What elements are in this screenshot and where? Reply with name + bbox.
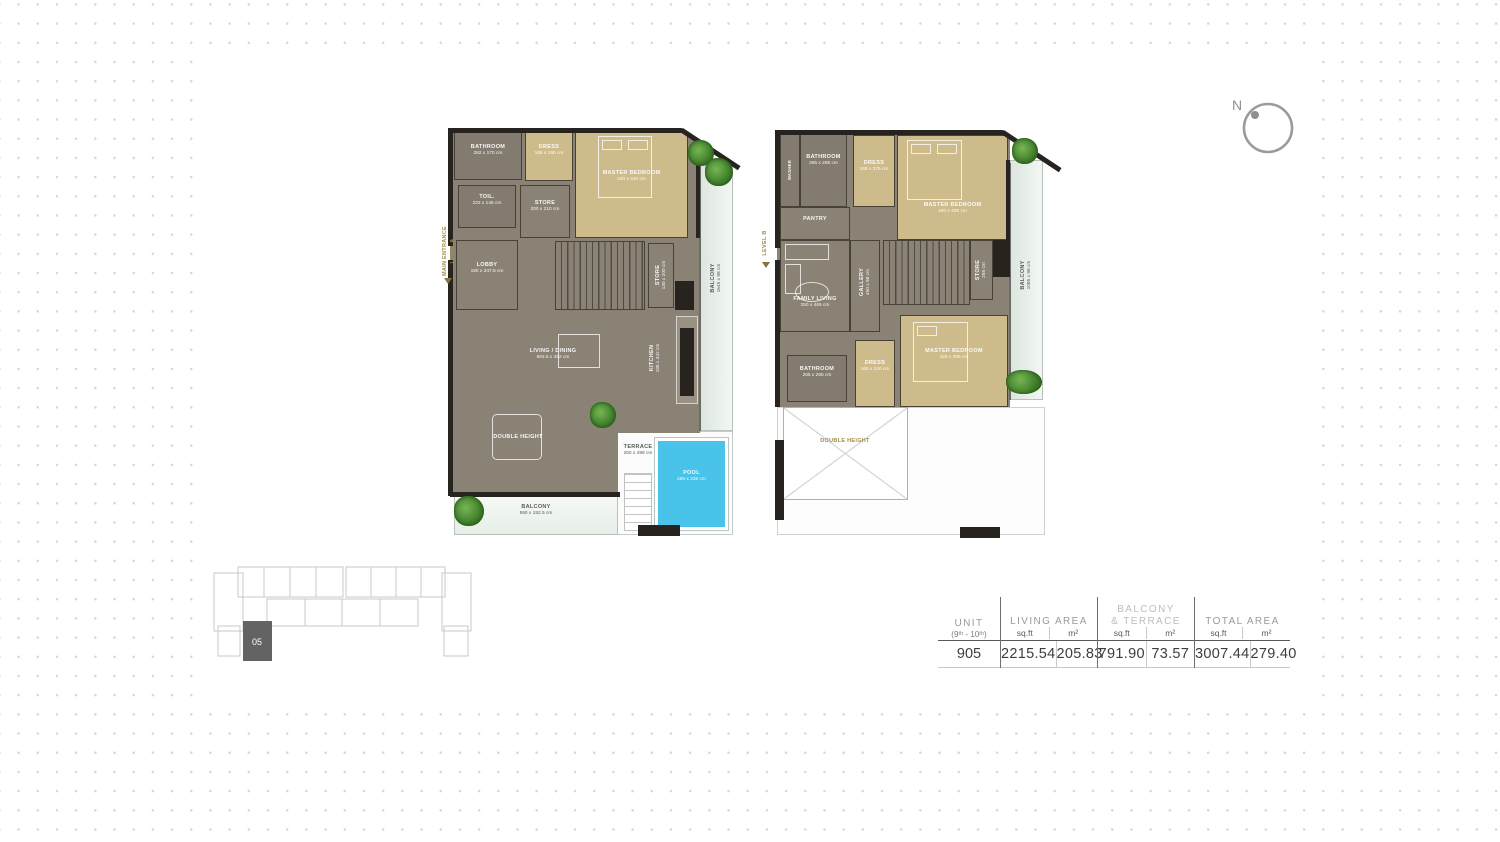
- pillow-outline: [602, 140, 622, 150]
- plant-icon: [1012, 138, 1038, 164]
- floor-plan-page: N: [0, 0, 1500, 842]
- wall-left-bottom-block: [775, 440, 784, 520]
- balcony-right-strip: [1010, 160, 1043, 400]
- floor-plan-level-b: WASHER BATHROOM 265 x 265 cm DRESS 165 x…: [775, 130, 1060, 542]
- sofa-outline: [492, 414, 542, 460]
- wall-top: [777, 130, 1007, 135]
- wall-kitchen-right: [680, 328, 694, 396]
- wall-left-lower: [448, 260, 453, 496]
- floor-plan-level-a: BATHROOM 262 x 170 cm DRESS 165 x 190 cm…: [448, 128, 740, 540]
- room-bathroom-upper: [800, 132, 847, 207]
- area-table-balcony-column: BALCONY & TERRACE sq.ft m² 791.90 73.57: [1097, 597, 1194, 668]
- pillow-outline: [628, 140, 648, 150]
- keyplan-right-tower: [442, 573, 471, 631]
- unit-floors-sub: (9ᵗʰ - 10ᵗʰ): [951, 630, 986, 639]
- area-table: UNIT (9ᵗʰ - 10ᵗʰ) 905 LIVING AREA sq.ft …: [938, 597, 1290, 668]
- total-m2-label: m²: [1242, 627, 1290, 639]
- double-height-void: [783, 407, 908, 500]
- living-m2-value: 205.83: [1056, 641, 1103, 667]
- total-area-header: TOTAL AREA: [1205, 616, 1279, 627]
- living-area-header: LIVING AREA: [1010, 616, 1088, 627]
- balcony-terrace-header-1: BALCONY: [1117, 604, 1175, 616]
- unit-number: 905: [938, 641, 1000, 668]
- room-pantry: [780, 207, 850, 240]
- living-sqft-value: 2215.54: [1001, 641, 1056, 667]
- total-m2-value: 279.40: [1250, 641, 1297, 667]
- table-outline: [795, 282, 829, 302]
- balcony-sqft-label: sq.ft: [1098, 627, 1146, 639]
- level-b-arrow-icon: [762, 262, 770, 268]
- wall-terrace-bottom: [638, 525, 680, 536]
- wall-left-upper: [448, 128, 453, 246]
- compass-dot-icon: [1251, 111, 1259, 119]
- pool-steps: [624, 473, 652, 531]
- room-store-stair: [648, 243, 674, 308]
- wall-right-upper: [1006, 160, 1010, 240]
- pool: [655, 438, 728, 530]
- entrance-arrow-icon: [444, 278, 452, 284]
- room-bathroom-lower: [787, 355, 847, 402]
- plant-icon: [1006, 370, 1042, 394]
- room-washer: [780, 132, 800, 207]
- balcony-m2-label: m²: [1146, 627, 1195, 639]
- living-m2-label: m²: [1049, 627, 1098, 639]
- key-plan: 05: [210, 564, 475, 666]
- pillow-outline: [911, 144, 931, 154]
- pillow-outline: [937, 144, 957, 154]
- keyplan-unit-05-label: 05: [252, 637, 262, 647]
- plant-icon: [590, 402, 616, 428]
- plant-icon: [454, 496, 484, 526]
- room-store-upper: [520, 185, 570, 238]
- room-bathroom: [454, 130, 522, 180]
- total-sqft-value: 3007.44: [1195, 641, 1250, 667]
- unit-header: UNIT: [955, 618, 984, 629]
- balcony-right-strip: [700, 158, 733, 431]
- compass-circle-icon: [1244, 104, 1292, 152]
- balcony-terrace-header-2: & TERRACE: [1111, 616, 1181, 628]
- area-table-living-column: LIVING AREA sq.ft m² 2215.54 205.83: [1000, 597, 1097, 668]
- room-gallery: [850, 240, 880, 332]
- dining-table-outline: [558, 334, 600, 368]
- area-table-unit-column: UNIT (9ᵗʰ - 10ᵗʰ) 905: [938, 597, 1000, 668]
- compass-n-label: N: [1232, 97, 1242, 113]
- balcony-m2-value: 73.57: [1146, 641, 1195, 667]
- wall-left-upper: [775, 130, 780, 248]
- room-dress-lower: [855, 340, 895, 407]
- wall-pillar: [993, 240, 1010, 277]
- wall-pillar: [675, 281, 694, 310]
- area-table-total-column: TOTAL AREA sq.ft m² 3007.44 279.40: [1194, 597, 1290, 668]
- wall-left-lower: [775, 260, 780, 407]
- room-dress-upper: [853, 135, 895, 207]
- pillow-outline: [917, 326, 937, 336]
- wall-bottom-block: [960, 527, 1000, 538]
- room-toilet: [458, 185, 516, 228]
- keyplan-left-tower: [214, 573, 243, 631]
- sofa-outline: [785, 244, 829, 260]
- total-sqft-label: sq.ft: [1195, 627, 1242, 639]
- wall-bottom: [450, 492, 620, 497]
- wall-top: [450, 128, 688, 133]
- living-sqft-label: sq.ft: [1001, 627, 1049, 639]
- north-compass: N: [1226, 92, 1302, 160]
- room-dress: [525, 130, 573, 181]
- room-lobby: [456, 240, 518, 310]
- staircase: [883, 240, 970, 305]
- wall-right-upper: [696, 158, 700, 238]
- staircase: [555, 241, 645, 310]
- balcony-sqft-value: 791.90: [1098, 641, 1146, 667]
- plant-icon: [705, 158, 733, 186]
- room-store-stair: [970, 240, 993, 300]
